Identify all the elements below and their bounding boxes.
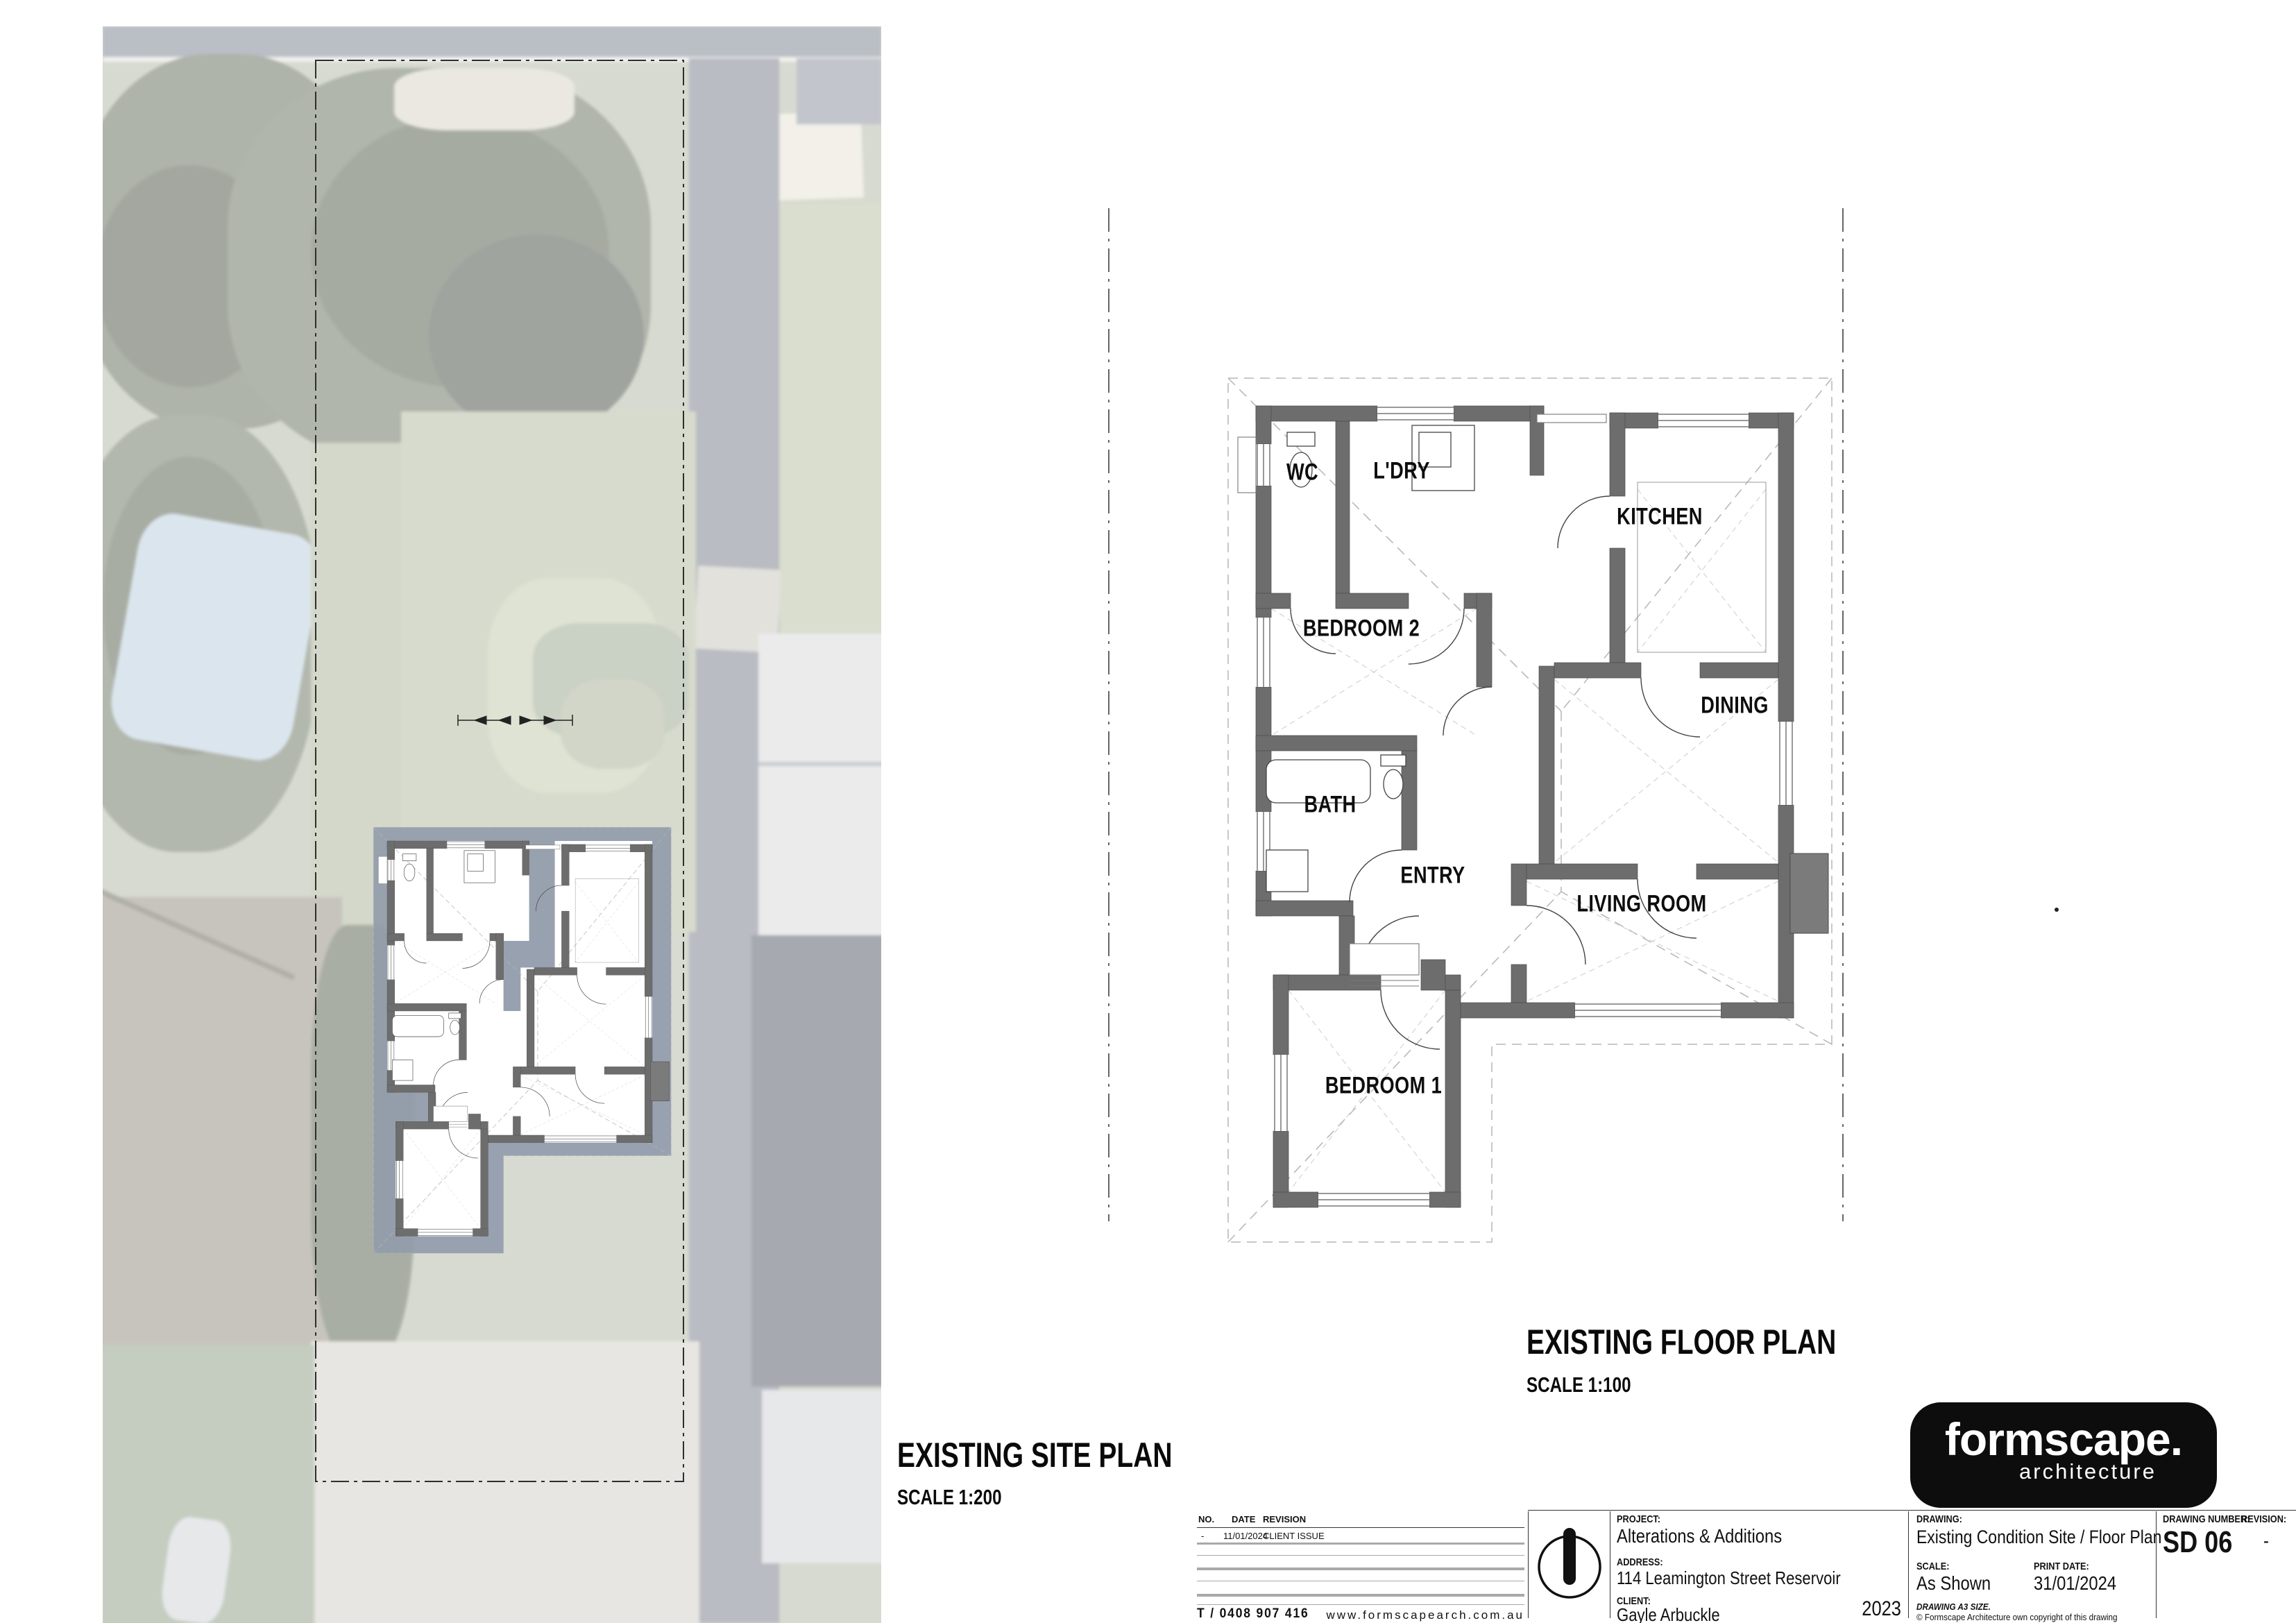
formscape-logo: formscape. architecture: [1910, 1402, 2217, 1508]
north-arrow-icon: [1535, 1524, 1604, 1614]
revision-value: -: [2263, 1530, 2269, 1552]
stray-mark: [2055, 908, 2059, 912]
site-plan-scale: SCALE 1:200: [897, 1485, 1002, 1510]
rev-col-no: NO.: [1198, 1514, 1214, 1524]
rev-row-date: 11/01/2024: [1223, 1531, 1268, 1541]
drawing-number-label: DRAWING NUMBER:: [2163, 1513, 2250, 1525]
website-url: www.formscapearch.com.au: [1318, 1608, 1524, 1622]
logo-wordmark: formscape.: [1910, 1416, 2217, 1462]
scale-value: As Shown: [1916, 1572, 1991, 1595]
year: 2023: [1837, 1597, 1902, 1621]
print-date-value: 31/01/2024: [2034, 1572, 2116, 1595]
room-label-bedroom2: BEDROOM 2: [1303, 615, 1420, 643]
print-date-label: PRINT DATE:: [2034, 1561, 2089, 1572]
room-label-entry: ENTRY: [1400, 863, 1465, 890]
client-value: Gayle Arbuckle: [1617, 1604, 1720, 1623]
address-label: ADDRESS:: [1617, 1556, 1663, 1568]
rev-row-no: -: [1201, 1531, 1204, 1541]
room-label-wc: WC: [1286, 459, 1318, 486]
address-value: 114 Leamington Street Reservoir: [1617, 1567, 1841, 1589]
room-label-bedroom1: BEDROOM 1: [1325, 1073, 1442, 1100]
revision-label: REVISION:: [2241, 1513, 2286, 1525]
copyright-note: © Formscape Architecture own copyright o…: [1916, 1612, 2118, 1622]
project-value: Alterations & Additions: [1617, 1525, 1782, 1547]
phone-number: T / 0408 907 416: [1197, 1606, 1309, 1622]
rev-col-date: DATE: [1232, 1514, 1255, 1524]
rev-row-text: CLIENT ISSUE: [1263, 1531, 1325, 1541]
scale-label: SCALE:: [1916, 1561, 1949, 1572]
floor-plan-title: EXISTING FLOOR PLAN: [1527, 1322, 1836, 1362]
project-label: PROJECT:: [1617, 1513, 1660, 1525]
room-label-bath: BATH: [1304, 792, 1356, 819]
room-label-living: LIVING ROOM: [1576, 891, 1706, 918]
floor-plan-linework: [0, 0, 2296, 1623]
room-label-ldry: L'DRY: [1373, 458, 1430, 485]
room-label-dining: DINING: [1701, 692, 1769, 720]
drawing-value: Existing Condition Site / Floor Plan: [1916, 1527, 2161, 1548]
site-plan-title: EXISTING SITE PLAN: [897, 1435, 1173, 1475]
drawing-label: DRAWING:: [1916, 1513, 1962, 1525]
rev-col-revision: REVISION: [1263, 1514, 1306, 1524]
drawing-sheet: WC L'DRY KITCHEN BEDROOM 2 DINING BATH E…: [0, 0, 2296, 1623]
drawing-number: SD 06: [2163, 1525, 2232, 1560]
room-label-kitchen: KITCHEN: [1617, 504, 1703, 531]
floor-plan-scale: SCALE 1:100: [1527, 1373, 1631, 1397]
size-note: DRAWING A3 SIZE.: [1916, 1601, 1991, 1612]
